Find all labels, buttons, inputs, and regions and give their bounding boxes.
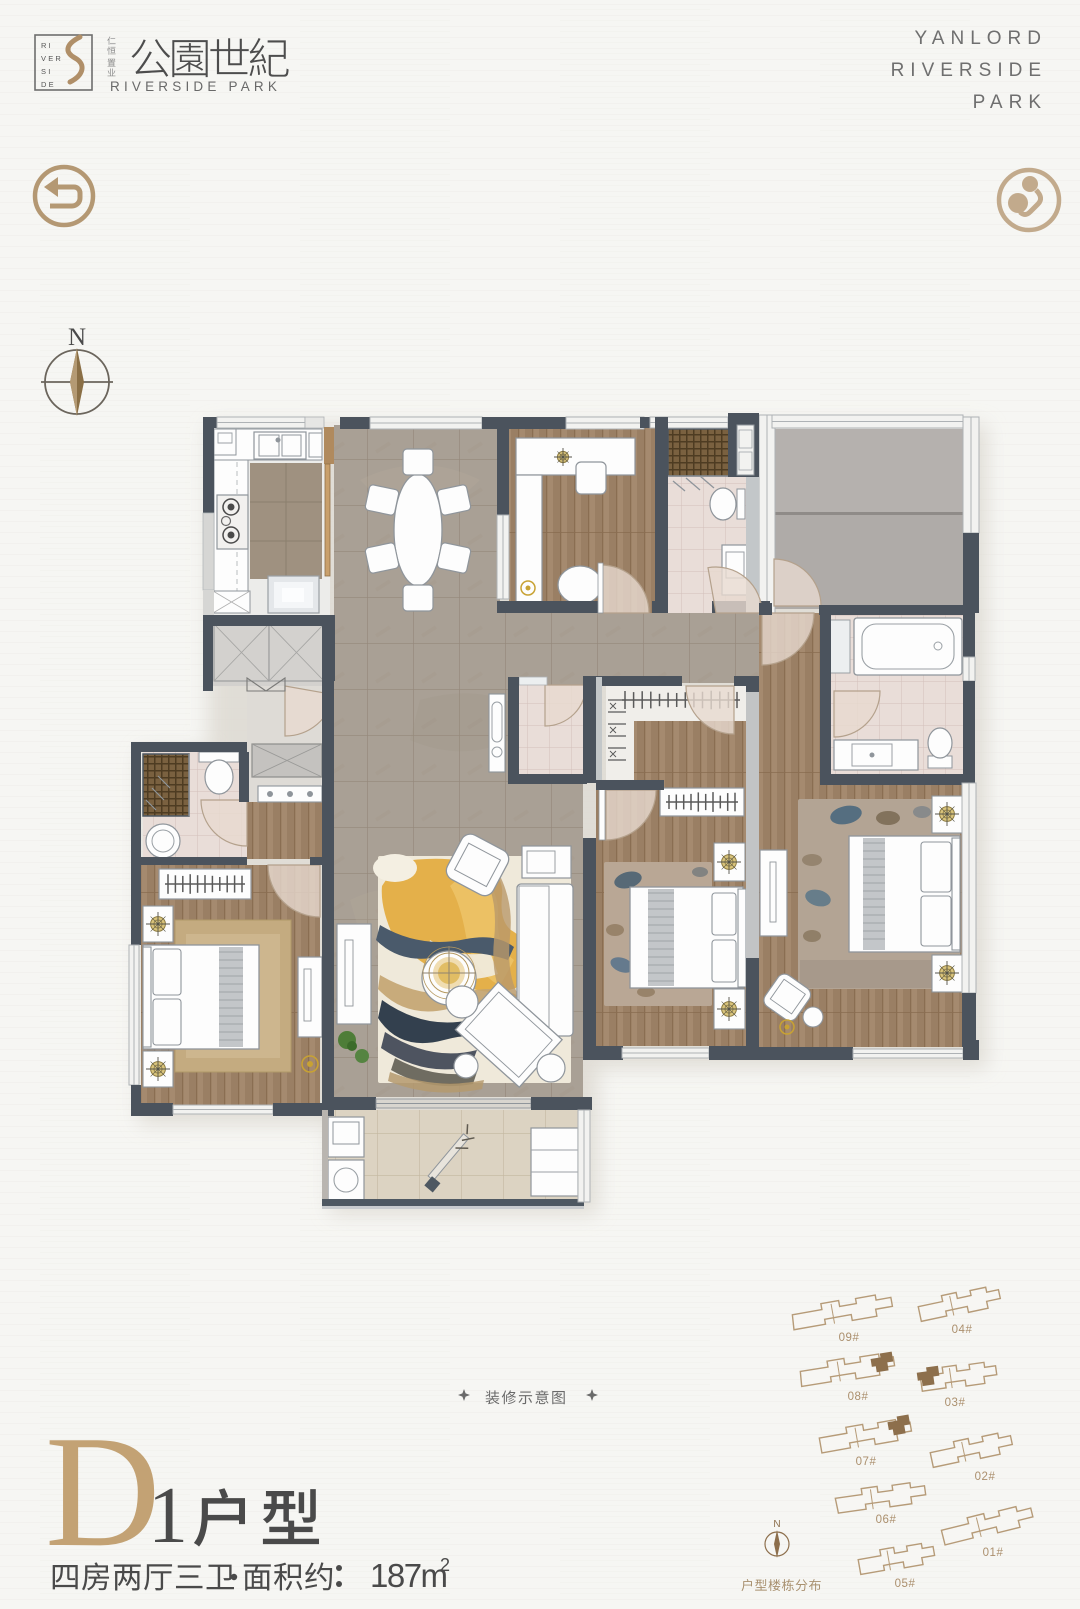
svg-text:03#: 03# <box>945 1397 966 1409</box>
svg-text:06#: 06# <box>876 1514 897 1526</box>
svg-text:RI: RI <box>41 41 53 50</box>
svg-text:07#: 07# <box>856 1456 877 1468</box>
svg-text:SI: SI <box>41 67 53 76</box>
svg-text:YANLORD: YANLORD <box>915 28 1047 49</box>
svg-text:RIVERSIDE: RIVERSIDE <box>891 60 1047 81</box>
svg-text:VER: VER <box>41 54 63 63</box>
svg-text:02#: 02# <box>975 1471 996 1483</box>
svg-text:1: 1 <box>148 1472 188 1560</box>
svg-text:187m: 187m <box>370 1557 447 1594</box>
svg-text:RIVERSIDE PARK: RIVERSIDE PARK <box>110 79 281 94</box>
svg-text:PARK: PARK <box>973 92 1047 113</box>
svg-text:2: 2 <box>440 1555 450 1575</box>
svg-text:DE: DE <box>41 80 56 89</box>
svg-text:D: D <box>45 1402 161 1580</box>
svg-text:08#: 08# <box>848 1391 869 1403</box>
svg-text:04#: 04# <box>952 1324 973 1336</box>
svg-text:N: N <box>773 1519 780 1530</box>
svg-text:05#: 05# <box>895 1578 916 1590</box>
svg-text:09#: 09# <box>839 1332 860 1344</box>
svg-text:01#: 01# <box>983 1547 1004 1559</box>
svg-text:N: N <box>68 324 86 351</box>
